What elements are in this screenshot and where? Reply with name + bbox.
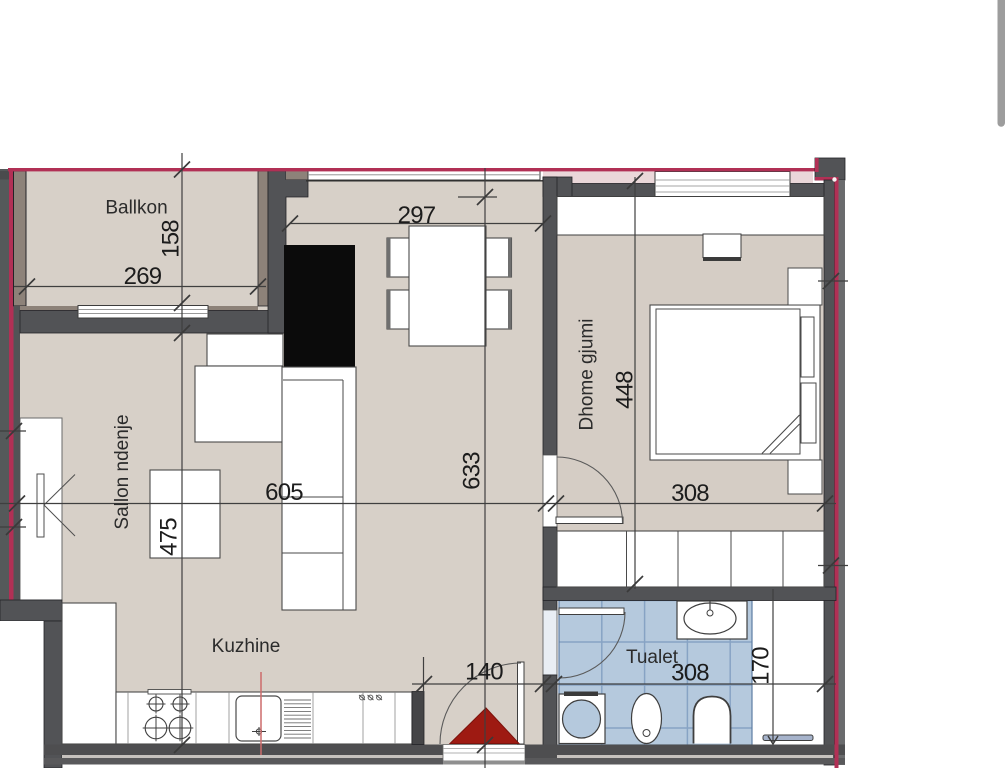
svg-text:475: 475: [156, 518, 183, 556]
svg-text:308: 308: [671, 480, 709, 507]
svg-text:Kuzhine: Kuzhine: [212, 636, 281, 657]
svg-text:308: 308: [671, 660, 709, 687]
svg-text:140: 140: [465, 659, 503, 686]
svg-text:605: 605: [265, 479, 303, 506]
svg-text:170: 170: [748, 647, 775, 685]
svg-text:297: 297: [398, 202, 436, 229]
svg-text:269: 269: [124, 263, 162, 290]
svg-text:448: 448: [612, 371, 639, 409]
svg-text:Sallon ndenje: Sallon ndenje: [112, 414, 133, 529]
svg-text:Dhome gjumi: Dhome gjumi: [576, 319, 597, 431]
svg-text:Ballkon: Ballkon: [105, 198, 167, 219]
svg-text:633: 633: [459, 452, 486, 490]
svg-text:158: 158: [158, 220, 185, 258]
